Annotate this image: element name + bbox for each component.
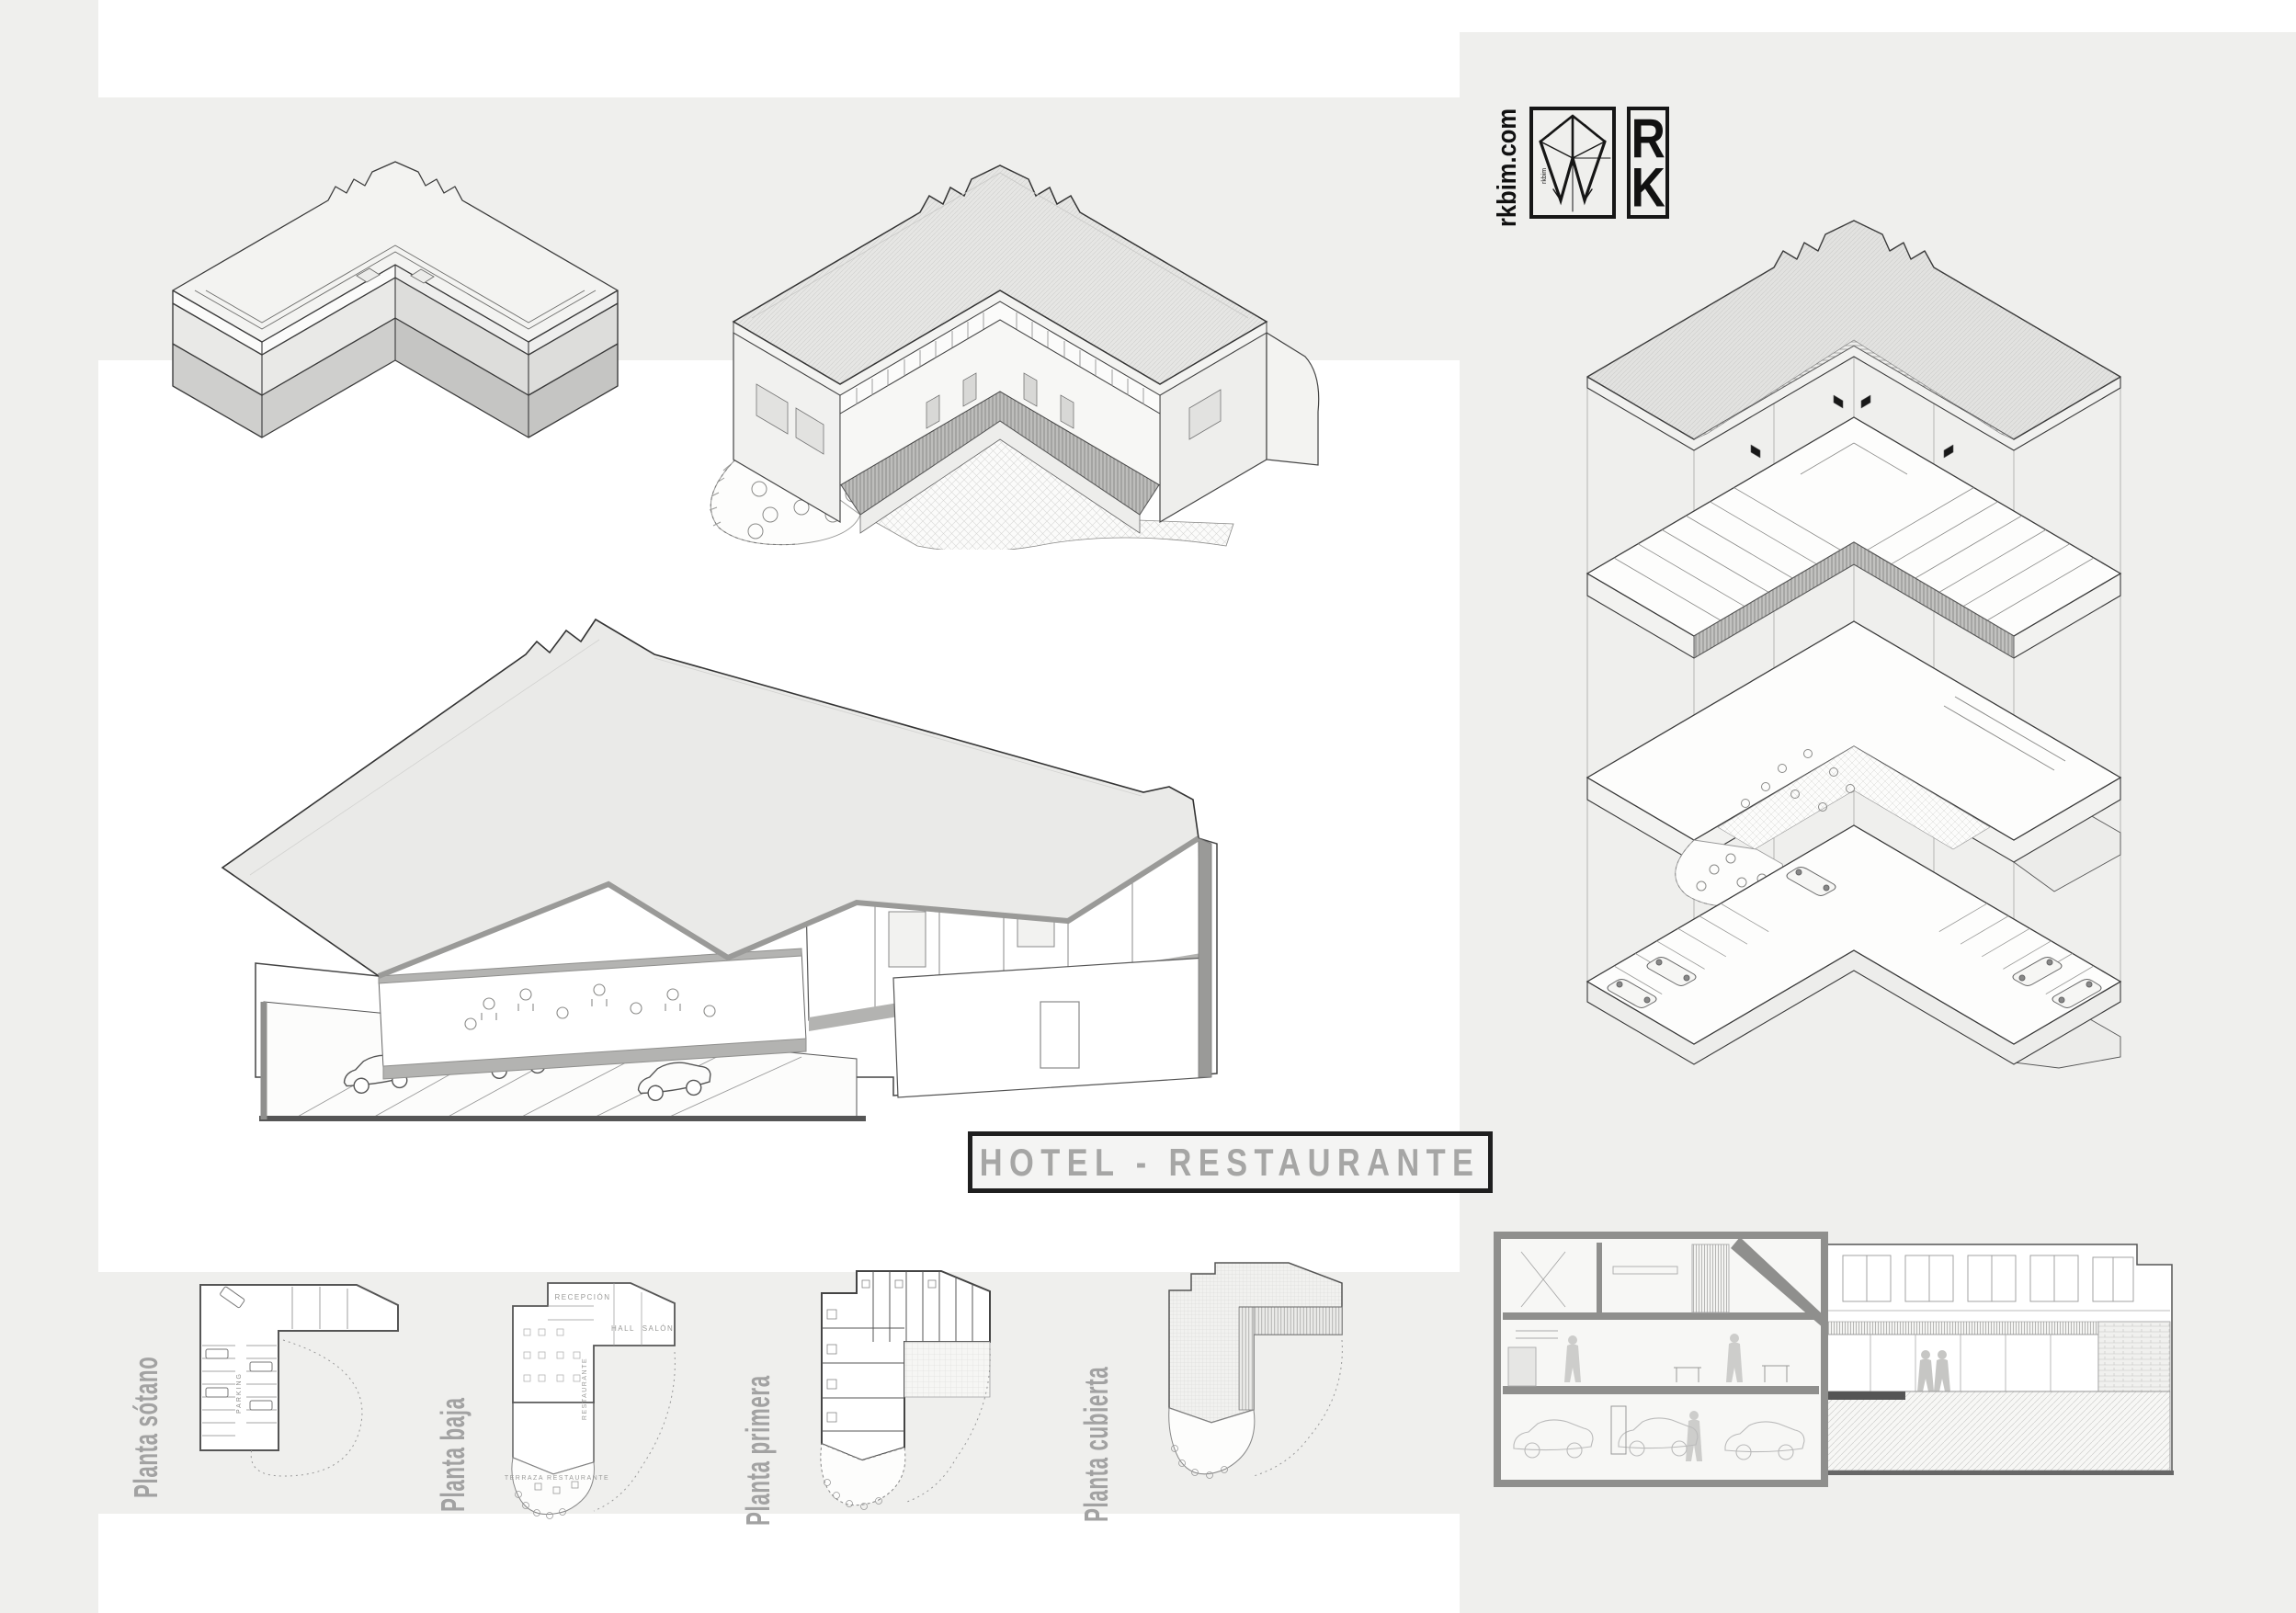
presentation-board: rkbim.com rkbim R K	[0, 0, 2296, 1613]
plan-sotano-parking-label: PARKING	[236, 1372, 243, 1414]
plan-baja-salon: SALÓN	[642, 1324, 675, 1333]
building-axonometric-drawing	[642, 99, 1340, 550]
title-box: HOTEL - RESTAURANTE	[968, 1131, 1493, 1193]
logo-cube-box: rkbim	[1529, 107, 1616, 219]
right-annex	[1267, 333, 1319, 465]
section-elevation-drawing	[1494, 1230, 2178, 1496]
plan-baja-restaurante: RESTAURANTE	[582, 1357, 588, 1420]
massing-model-drawing	[145, 108, 642, 458]
logo-cube-icon: rkbim	[1533, 110, 1612, 215]
logo-monogram-box: R K	[1627, 107, 1669, 219]
section-left-cut	[1497, 1235, 1824, 1483]
plan-primera-drawing	[801, 1255, 1022, 1521]
plan-baja-recepcion: RECEPCIÓN	[554, 1293, 610, 1301]
plan-label-sotano: Planta sótano	[131, 1357, 162, 1498]
page-title: HOTEL - RESTAURANTE	[980, 1141, 1481, 1185]
plan-label-primera: Planta primera	[743, 1375, 774, 1526]
bg-topright-strip	[1460, 0, 2296, 32]
plan-baja-drawing: RECEPCIÓN HALL SALÓN RESTAURANTE TERRAZA…	[494, 1265, 697, 1527]
plan-label-baja: Planta baja	[438, 1397, 469, 1512]
cutaway-section-drawing	[213, 562, 1279, 1123]
plan-baja-hall: HALL	[611, 1324, 635, 1333]
bg-top-strip	[98, 0, 1460, 97]
logo-website-text: rkbim.com	[1493, 108, 1523, 227]
plan-label-cubierta: Planta cubierta	[1081, 1367, 1112, 1522]
exploded-axonometric-drawing	[1558, 204, 2155, 1073]
bg-bottom-strip	[98, 1514, 1460, 1613]
plan-baja-terraza: TERRAZA RESTAURANTE	[505, 1475, 609, 1482]
section-right-elevation	[1823, 1244, 2174, 1475]
logo-inner-mark: rkbim	[1541, 168, 1548, 184]
plan-sotano-drawing: PARKING	[173, 1276, 403, 1496]
plan-cubierta-drawing	[1151, 1255, 1348, 1513]
